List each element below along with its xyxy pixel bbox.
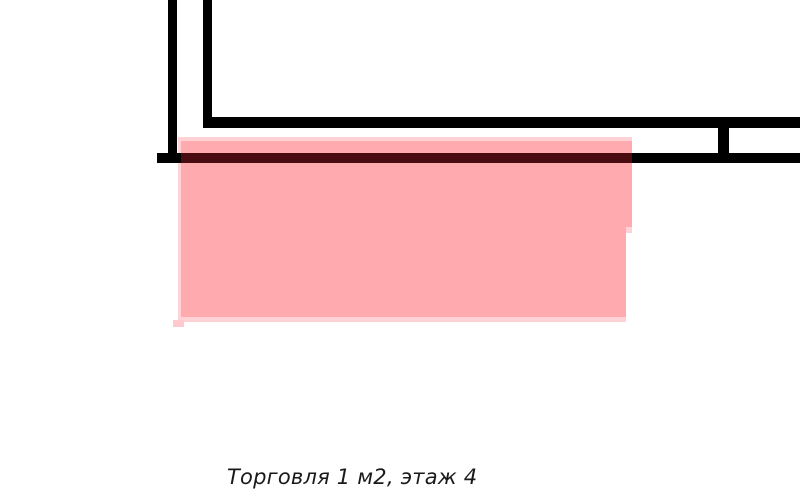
area-caption: Торговля 1 м2, этаж 4 — [227, 465, 477, 489]
wall-horizontal-bottom-left — [157, 153, 181, 163]
wall-vertical-left — [168, 0, 177, 162]
highlight-tab — [173, 320, 184, 327]
highlight-step-light — [626, 227, 632, 233]
wall-horizontal-bottom-right — [632, 153, 800, 163]
wall-bottom-overlap-segment — [181, 153, 632, 163]
wall-horizontal-top — [203, 117, 800, 128]
wall-vertical-right — [203, 0, 212, 127]
highlight-fringe-bottom — [178, 317, 626, 322]
floor-plan-canvas: Торговля 1 м2, этаж 4 — [0, 0, 800, 497]
highlight-main-lower[interactable] — [181, 227, 626, 317]
